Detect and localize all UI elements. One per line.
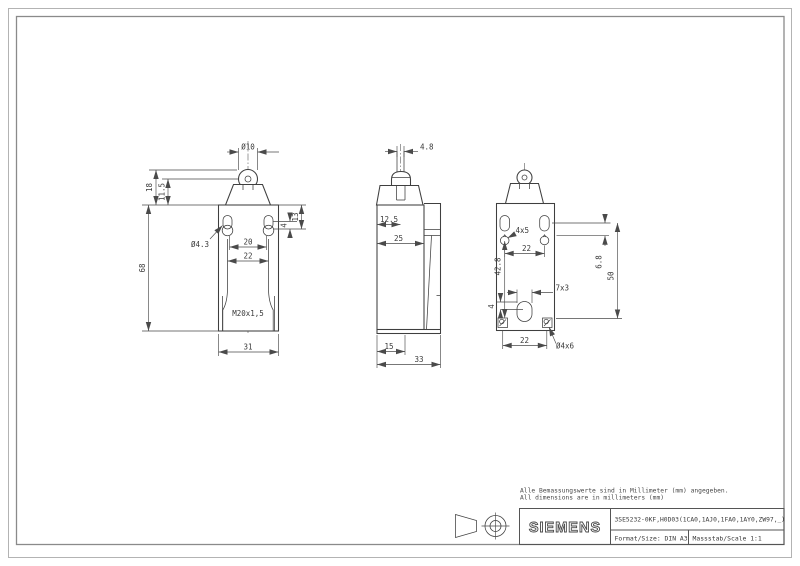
rear-dim-4x5: 4x5 (516, 226, 530, 235)
front-view: M20x1,5 Ø10 18 11.5 68 13 4 Ø4.3 20 22 3… (138, 141, 306, 356)
side-head (377, 186, 424, 206)
rear-dim-dia4x6: Ø4x6 (556, 342, 575, 351)
front-dim-4: 4 (280, 223, 289, 228)
front-thread-label: M20x1,5 (232, 309, 264, 318)
engineering-drawing-canvas: M20x1,5 Ø10 18 11.5 68 13 4 Ø4.3 20 22 3… (0, 0, 800, 566)
front-dim-18: 18 (145, 183, 154, 193)
front-dim-22: 22 (243, 252, 252, 261)
rear-roller (517, 170, 532, 185)
scale-label: Massstab/Scale 1:1 (693, 535, 762, 543)
side-dim-25: 25 (394, 234, 403, 243)
note-line-de: Alle Bemassungswerte sind in Millimeter … (520, 488, 729, 495)
rear-body (497, 204, 555, 331)
side-back-details (424, 230, 441, 330)
rear-view: 4x5 22 42.8 6.8 50 7x3 4 22 Ø4x6 (487, 163, 622, 351)
projection-crosshair (482, 513, 510, 540)
rear-head (506, 184, 544, 204)
rear-dim-4: 4 (487, 304, 496, 309)
front-dim-68: 68 (138, 263, 147, 273)
front-dim-13: 13 (291, 212, 300, 221)
side-back-housing (424, 204, 441, 330)
projection-cone-icon (456, 515, 477, 538)
rear-dim-7x3: 7x3 (556, 284, 570, 293)
format-label: Format/Size: DIN A3 (615, 535, 688, 543)
front-dim-dia10: Ø10 (241, 143, 255, 152)
side-view: 4.8 12.5 25 15 33 (377, 143, 441, 369)
front-dim-dia4-3: Ø4.3 (191, 240, 209, 249)
rear-dim-50: 50 (607, 271, 616, 281)
side-dim-15: 15 (384, 342, 393, 351)
side-base (377, 330, 441, 334)
side-dim-12-5: 12.5 (380, 215, 398, 224)
projection-symbol (456, 513, 510, 540)
rear-dim-22-top: 22 (522, 244, 531, 253)
note-line-en: All dimensions are in millimeters (mm) (520, 495, 664, 502)
rear-dim-22-bottom: 22 (520, 336, 529, 345)
siemens-logo: SIEMENS (529, 520, 601, 536)
front-dim-31: 31 (243, 343, 252, 352)
drawing-notes: Alle Bemassungswerte sind in Millimeter … (520, 488, 729, 502)
front-dim-20: 20 (243, 238, 253, 247)
front-head (226, 185, 271, 206)
side-dim-4-8: 4.8 (420, 143, 434, 152)
drawing-sheet: M20x1,5 Ø10 18 11.5 68 13 4 Ø4.3 20 22 3… (0, 0, 800, 566)
part-number: 3SE5232-0KF,H0D03(1CA0,1AJ0,1FA0,1AY0,ZW… (615, 517, 786, 524)
front-dim-11-5: 11.5 (158, 183, 167, 201)
rear-dim-6-8: 6.8 (595, 255, 604, 269)
title-block: SIEMENS 3SE5232-0KF,H0D03(1CA0,1AJ0,1FA0… (520, 509, 786, 545)
rear-dim-42-8: 42.8 (494, 257, 503, 276)
side-dim-33: 33 (414, 355, 423, 364)
